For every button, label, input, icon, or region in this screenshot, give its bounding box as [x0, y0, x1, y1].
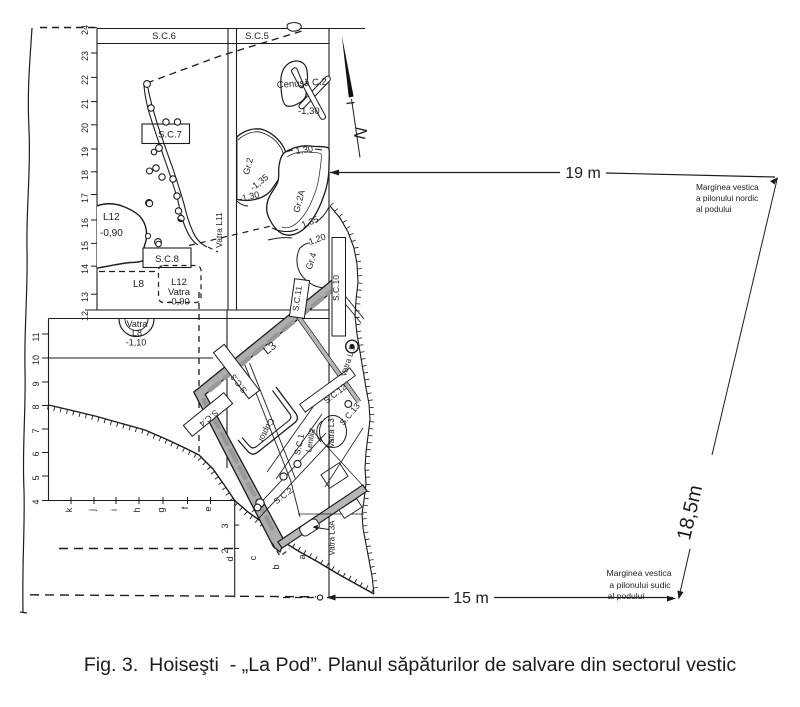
svg-text:11: 11 [31, 332, 41, 341]
svg-text:Vatra L3: Vatra L3 [327, 418, 336, 448]
svg-text:6: 6 [31, 451, 41, 456]
svg-text:d: d [225, 556, 235, 561]
svg-text:S.C.8: S.C.8 [155, 254, 179, 265]
svg-text:al podului: al podului [608, 591, 645, 601]
svg-text:S.C.7: S.C.7 [158, 130, 182, 141]
svg-text:k: k [64, 507, 74, 512]
svg-text:9: 9 [31, 381, 41, 386]
svg-text:16: 16 [80, 218, 90, 228]
svg-text:al podului: al podului [696, 204, 732, 214]
svg-text:7: 7 [31, 428, 41, 433]
svg-text:15: 15 [80, 241, 90, 251]
svg-text:L12: L12 [103, 212, 120, 223]
svg-text:12: 12 [80, 311, 90, 321]
svg-text:c: c [248, 555, 258, 560]
svg-text:L8: L8 [133, 279, 145, 290]
svg-text:j: j [87, 509, 97, 512]
svg-text:20: 20 [80, 123, 90, 133]
svg-text:22: 22 [80, 75, 90, 85]
svg-text:g: g [156, 507, 166, 512]
svg-text:S.C.10: S.C.10 [331, 275, 341, 301]
svg-text:Marginea vestica: Marginea vestica [696, 182, 759, 192]
svg-text:10: 10 [31, 355, 41, 365]
svg-text:Vatra L3A: Vatra L3A [328, 520, 337, 556]
svg-text:24: 24 [80, 25, 90, 35]
svg-text:14: 14 [80, 264, 90, 274]
svg-text:S.C.5: S.C.5 [245, 31, 269, 42]
svg-text:a pilonului nordic: a pilonului nordic [696, 193, 758, 203]
svg-text:23: 23 [80, 51, 90, 61]
svg-text:4: 4 [31, 499, 41, 504]
svg-text:Vatra L11: Vatra L11 [214, 212, 224, 248]
svg-text:-0,90: -0,90 [168, 297, 190, 308]
svg-text:18: 18 [80, 170, 90, 180]
svg-text:Fig. 3. Hoiseşti - „La Pod”.: Fig. 3. Hoiseşti - „La Pod”. Planul săpă… [84, 654, 737, 676]
svg-text:19: 19 [80, 147, 90, 157]
svg-text:-1,30: -1,30 [298, 106, 320, 117]
svg-text:i: i [109, 509, 119, 511]
svg-text:-0,90: -0,90 [100, 228, 123, 239]
svg-text:h: h [132, 507, 142, 512]
svg-text:S.C.6: S.C.6 [152, 31, 176, 42]
svg-text:17: 17 [80, 193, 90, 203]
svg-text:a pilonului sudic: a pilonului sudic [609, 580, 671, 590]
svg-text:Marginea vestica: Marginea vestica [607, 568, 672, 578]
svg-text:e: e [203, 506, 213, 511]
svg-text:8: 8 [31, 404, 41, 409]
svg-text:b: b [271, 564, 281, 569]
svg-text:13: 13 [80, 292, 90, 302]
svg-text:3: 3 [220, 523, 230, 528]
svg-text:5: 5 [31, 475, 41, 480]
svg-text:19 m: 19 m [565, 165, 601, 182]
svg-text:15 m: 15 m [453, 590, 489, 607]
svg-text:2: 2 [220, 548, 230, 553]
svg-text:-1,10: -1,10 [126, 338, 147, 348]
svg-text:21: 21 [80, 99, 90, 109]
svg-text:L8: L8 [132, 328, 142, 338]
